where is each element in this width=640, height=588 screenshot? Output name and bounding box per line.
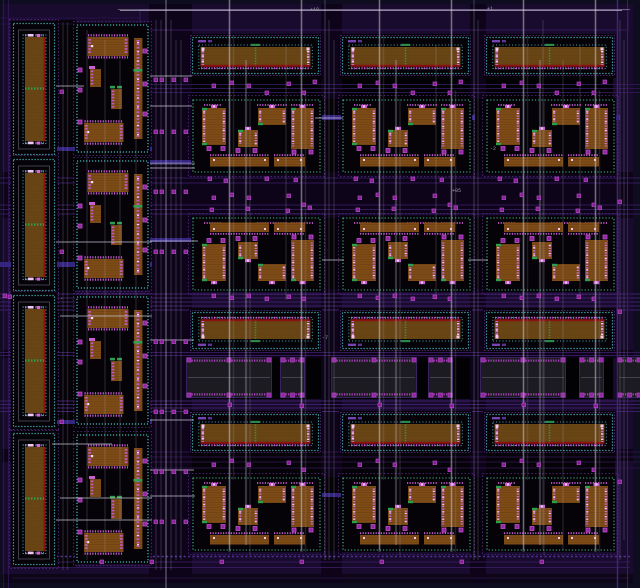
svg-text:+1: +1 [487,6,493,12]
svg-text:-7: -7 [322,335,328,341]
svg-text:+05: +05 [452,188,461,194]
svg-text:-2: -2 [490,146,496,152]
svg-text:-: - [60,296,63,302]
svg-text:+18: +18 [310,7,319,13]
